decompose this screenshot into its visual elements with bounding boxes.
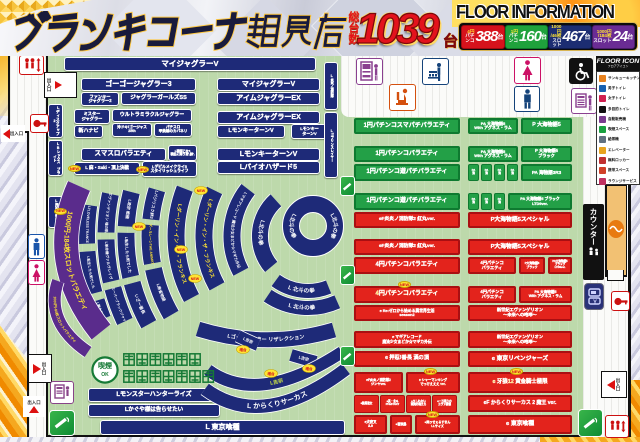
svg-text:NEW: NEW [135,225,144,229]
svg-text:Y: Y [592,300,596,306]
svg-text:OK: OK [101,372,109,378]
svg-text:増台: 増台 [305,366,313,371]
svg-text:NEW: NEW [197,189,206,193]
svg-text:NEW: NEW [191,277,200,281]
svg-text:増台: 増台 [239,347,247,352]
svg-text:喫煙: 喫煙 [98,361,112,370]
svg-text:増台: 増台 [267,371,275,376]
svg-text:NEW: NEW [177,248,186,252]
